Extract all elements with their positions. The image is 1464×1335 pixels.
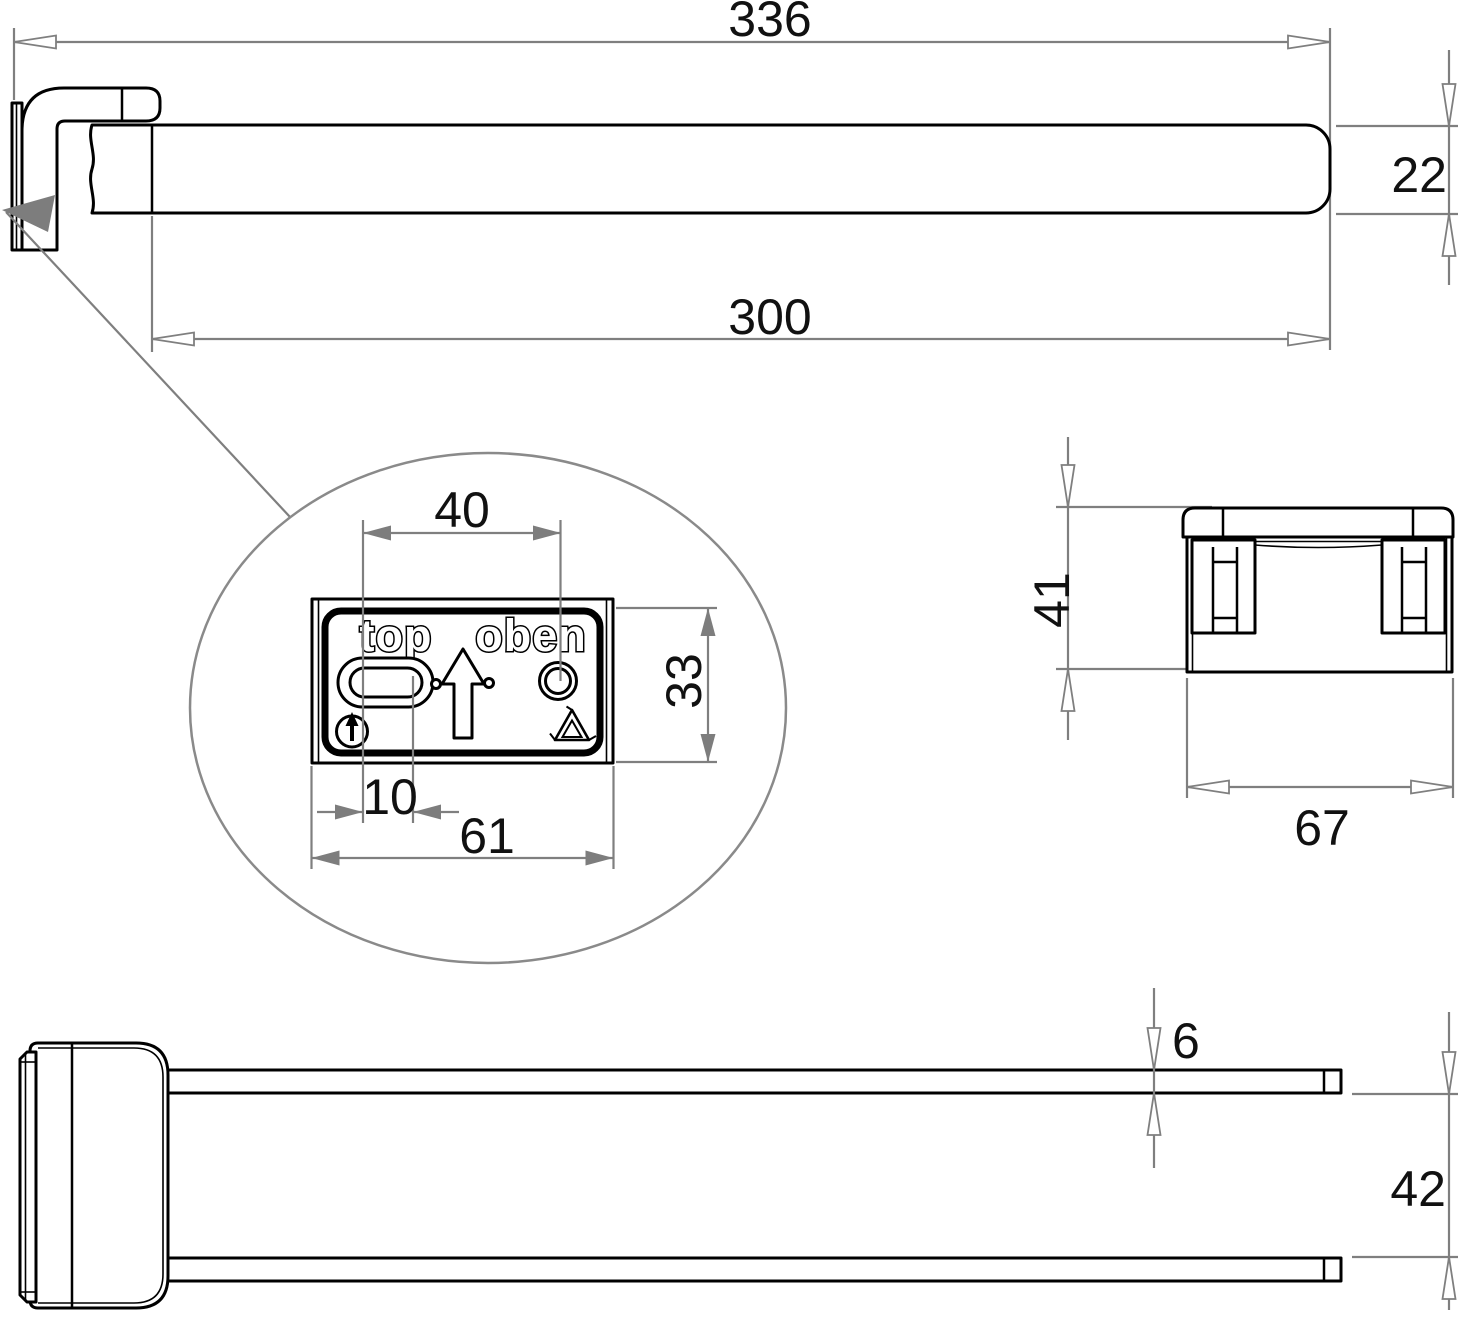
arrow-side-dot-left	[432, 680, 441, 689]
clip-right	[1382, 540, 1445, 633]
arrowhead-67-left	[1187, 781, 1229, 794]
arrowhead-61-right	[586, 851, 614, 866]
dim-plate-width: 61	[459, 808, 515, 864]
dim-plate-height: 33	[656, 653, 712, 709]
arrowhead-40-left	[363, 526, 391, 541]
mounting-slot-inner	[350, 668, 422, 697]
screw-hole-inner	[546, 669, 571, 694]
dim-overall-length: 336	[728, 0, 811, 47]
wall-flange-plan	[20, 1052, 36, 1302]
dim-bar-length: 300	[728, 289, 811, 345]
arrowhead-41-bottom	[1062, 669, 1075, 711]
arm-bottom	[162, 1258, 1341, 1281]
arrowhead-33-top	[701, 608, 716, 636]
arrowhead-22-top	[1443, 84, 1456, 126]
arrow-side-dot-right	[485, 679, 494, 688]
arrowhead-300-left	[152, 333, 194, 346]
dim-slot-to-hole: 40	[434, 482, 490, 538]
dim-bracket-height: 41	[1024, 572, 1080, 628]
arrowhead-336-right	[1288, 36, 1330, 49]
label-oben: oben	[475, 610, 587, 661]
arrowhead-22-bottom	[1443, 214, 1456, 256]
arrowhead-33-bottom	[701, 734, 716, 762]
arrowhead-42-bottom	[1443, 1257, 1456, 1299]
arrowhead-336-left	[14, 36, 56, 49]
arrowhead-6-top	[1148, 1028, 1161, 1070]
arrowhead-41-top	[1062, 465, 1075, 507]
drawing-canvas: 336 300 22 top oben	[0, 0, 1464, 1335]
dim-bracket-width: 67	[1294, 800, 1350, 856]
technical-drawing-page: 336 300 22 top oben	[0, 0, 1464, 1335]
dim-arm-thickness: 6	[1172, 1013, 1200, 1069]
detail-view: top oben	[2, 195, 786, 963]
arrowhead-6-bottom	[1148, 1093, 1161, 1135]
arrowhead-40-right	[533, 526, 561, 541]
arrowhead-61-left	[312, 851, 340, 866]
leader-line	[6, 212, 290, 517]
arrowhead-10-left	[335, 805, 363, 820]
clip-left	[1192, 540, 1255, 633]
bracket-body-plan	[30, 1043, 168, 1308]
front-view: 336 300 22	[12, 0, 1458, 352]
label-top: top	[360, 610, 433, 661]
arrowhead-67-right	[1411, 781, 1453, 794]
towel-bar	[91, 125, 1330, 213]
dim-arm-clearance: 42	[1390, 1161, 1446, 1217]
arrowhead-300-right	[1288, 333, 1330, 346]
bottom-view: 6 42	[20, 988, 1458, 1310]
arm-top	[162, 1070, 1341, 1093]
side-view: 41 67	[1024, 437, 1453, 856]
arrowhead-42-top	[1443, 1052, 1456, 1094]
dim-bar-height: 22	[1391, 147, 1447, 203]
dim-slot-offset: 10	[362, 769, 418, 825]
